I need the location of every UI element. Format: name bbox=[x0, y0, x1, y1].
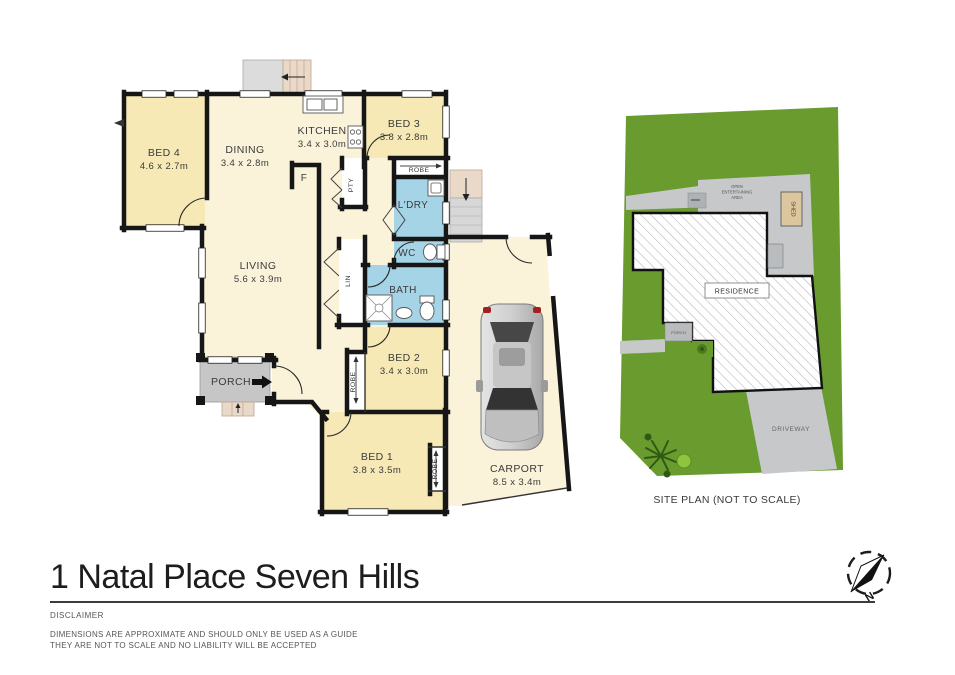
closet-linen bbox=[339, 239, 365, 325]
label-living-name: LIVING bbox=[240, 260, 277, 272]
label-bath: BATH bbox=[389, 285, 417, 296]
label-bed3-name: BED 3 bbox=[388, 118, 420, 130]
label-robe-bed1: ROBE bbox=[432, 459, 439, 480]
bath-basin bbox=[396, 308, 412, 319]
residence-step bbox=[768, 244, 783, 268]
divider-line bbox=[50, 601, 875, 603]
bath-toilet bbox=[420, 296, 434, 320]
floorplan-page: BED 4 4.6 x 2.7m DINING 3.4 x 2.8m KITCH… bbox=[0, 0, 955, 675]
floorplan: BED 4 4.6 x 2.7m DINING 3.4 x 2.8m KITCH… bbox=[114, 60, 569, 515]
label-dining-dims: 3.4 x 2.8m bbox=[221, 158, 269, 169]
site-steps bbox=[688, 193, 706, 208]
carport-gate-gap bbox=[550, 256, 553, 296]
garden-bush-center bbox=[700, 347, 704, 351]
bath-shower bbox=[366, 295, 392, 321]
label-laundry: L'DRY bbox=[398, 200, 428, 211]
porch-steps bbox=[222, 402, 254, 416]
label-dining-name: DINING bbox=[225, 144, 264, 156]
disclaimer-heading: DISCLAIMER bbox=[50, 611, 104, 620]
stove-cooktop bbox=[348, 126, 363, 148]
laundry-tub bbox=[428, 180, 444, 196]
siteplan: SHED RESIDENCE OPEN ENTERTAINING AREA PO… bbox=[620, 107, 843, 506]
label-bed2-dims: 3.4 x 3.0m bbox=[380, 366, 428, 377]
path-strip-left bbox=[620, 339, 665, 354]
label-robe-bed2: ROBE bbox=[350, 372, 357, 393]
shed-label: SHED bbox=[790, 201, 796, 216]
disclaimer-line1: DIMENSIONS ARE APPROXIMATE AND SHOULD ON… bbox=[50, 630, 358, 639]
siteplan-caption: SITE PLAN (NOT TO SCALE) bbox=[653, 494, 800, 506]
label-fridge: F bbox=[301, 173, 308, 184]
label-porch: PORCH bbox=[211, 376, 251, 388]
stairs-top bbox=[243, 60, 311, 94]
open-area-label-3: AREA bbox=[731, 195, 743, 200]
stairs-side bbox=[450, 170, 482, 242]
label-bed1-name: BED 1 bbox=[361, 451, 393, 463]
compass-icon: N bbox=[848, 552, 890, 604]
label-carport-name: CARPORT bbox=[490, 463, 544, 475]
label-wc: WC bbox=[398, 248, 415, 259]
car bbox=[476, 304, 548, 450]
label-living-dims: 5.6 x 3.9m bbox=[234, 274, 282, 285]
page-title: 1 Natal Place Seven Hills bbox=[50, 558, 419, 597]
residence-label: RESIDENCE bbox=[715, 289, 759, 296]
label-bed3-dims: 3.8 x 2.8m bbox=[380, 132, 428, 143]
open-area-label-2: ENTERTAINING bbox=[722, 190, 753, 195]
label-bed4-name: BED 4 bbox=[148, 147, 180, 159]
label-kitchen-dims: 3.4 x 3.0m bbox=[298, 139, 346, 150]
driveway-label: DRIVEWAY bbox=[772, 426, 810, 433]
label-bed1-dims: 3.8 x 3.5m bbox=[353, 465, 401, 476]
label-carport-dims: 8.5 x 3.4m bbox=[493, 477, 541, 488]
label-bed2-name: BED 2 bbox=[388, 352, 420, 364]
site-porch-label: PORCH bbox=[671, 330, 686, 335]
label-bed4-dims: 4.6 x 2.7m bbox=[140, 161, 188, 172]
label-pantry: PTY bbox=[348, 178, 355, 192]
open-area-label-1: OPEN bbox=[731, 184, 743, 189]
disclaimer-line2: THEY ARE NOT TO SCALE AND NO LIABILITY W… bbox=[50, 641, 317, 650]
label-robe-bed3: ROBE bbox=[409, 167, 430, 174]
label-kitchen-name: KITCHEN bbox=[298, 125, 347, 137]
wc-toilet bbox=[424, 244, 446, 260]
label-linen: LIN bbox=[345, 275, 352, 287]
kitchen-sink bbox=[303, 96, 343, 113]
